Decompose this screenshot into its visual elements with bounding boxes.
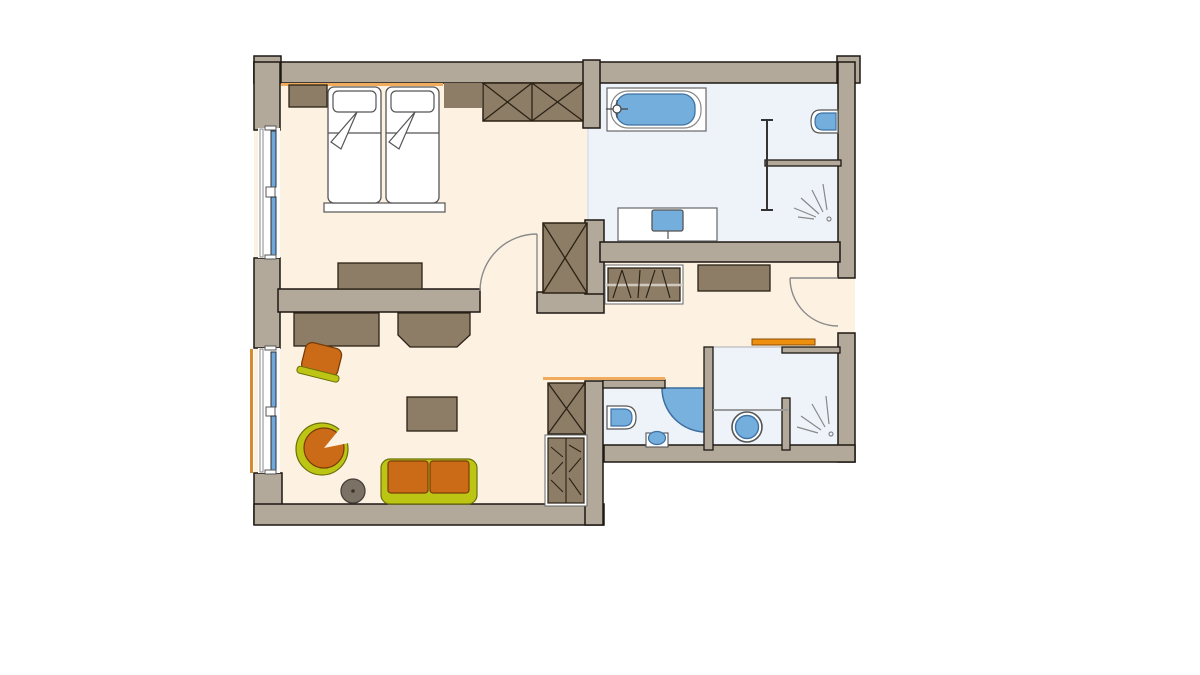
living-window-glass-1 — [271, 352, 276, 407]
bed-2-pillow — [391, 91, 434, 112]
vanity-sink — [652, 210, 683, 231]
living-window-awning-line — [250, 349, 253, 473]
wall-wc-top — [603, 380, 665, 388]
living-side-table — [398, 313, 470, 347]
bathtub-faucet-knob — [613, 105, 621, 113]
coffee-table — [407, 397, 457, 431]
living-window-mullion — [266, 407, 275, 416]
wall-top — [254, 62, 855, 83]
wall-wc-shower-divider — [704, 347, 713, 450]
bedroom-window-glass-2 — [271, 197, 276, 255]
wall-bottom-living — [254, 504, 604, 525]
bedroom-window-outer-frame — [260, 129, 263, 257]
bedroom-bench — [338, 263, 422, 289]
wall-bathroom-hall — [600, 242, 840, 262]
living-desk — [294, 313, 379, 346]
wc-sink-bowl — [649, 432, 666, 445]
sofa-cushion-2 — [430, 461, 469, 493]
living-stool-dot — [351, 489, 355, 493]
wall-bath-partition — [765, 160, 841, 166]
wall-bottom-right-block — [604, 445, 855, 462]
living-window-outer-frame — [260, 349, 263, 472]
wall-closet-base-block — [537, 292, 604, 313]
bed-1-pillow — [333, 91, 376, 112]
shower-room-floor — [713, 347, 838, 447]
exterior-cutout-bottom-right — [604, 462, 855, 525]
bedroom-window-mullion — [266, 187, 275, 197]
wall-left-middle-pier — [254, 258, 280, 348]
bedroom-window-glass-1 — [271, 131, 276, 187]
living-window-cap-top — [265, 346, 276, 350]
bedroom-window-cap-bottom — [265, 255, 276, 259]
wall-bedroom-bath-stub — [583, 60, 600, 128]
wc-toilet-bowl — [611, 409, 632, 426]
bedroom-wardrobe — [483, 83, 583, 121]
beds-foot-platform — [324, 203, 445, 212]
round-basin-inner — [736, 416, 759, 439]
bedroom-side-shelf — [444, 83, 482, 108]
alcove-accent-line — [543, 377, 665, 380]
bath-toilet-bowl — [815, 113, 836, 130]
hall-orange-shelf — [752, 339, 815, 345]
wall-bedroom-living — [278, 289, 480, 312]
bedroom-headboard-shelf — [289, 85, 327, 107]
sofa-cushion-1 — [388, 461, 428, 493]
bedroom-window-cap-top — [265, 126, 276, 130]
floor-plan-svg — [0, 0, 1200, 675]
living-window-glass-2 — [271, 416, 276, 470]
hall-sideboard — [698, 265, 770, 291]
wall-shower-top — [782, 347, 840, 353]
living-window-cap-bottom — [265, 470, 276, 474]
wall-living-right — [585, 381, 603, 525]
floor-plan — [0, 0, 1200, 675]
wall-left-upper — [254, 62, 280, 130]
wall-shower-stub — [782, 398, 790, 450]
